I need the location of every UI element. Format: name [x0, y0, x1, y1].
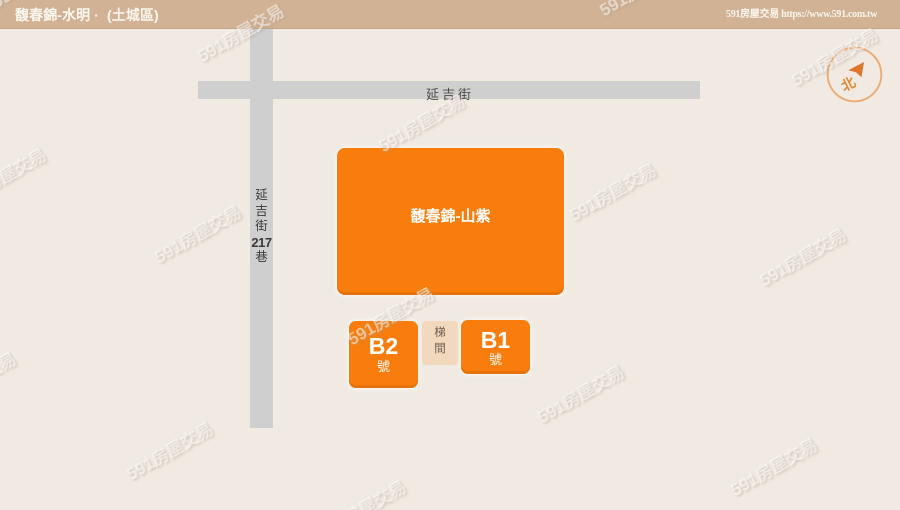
svg-text:北: 北 [838, 74, 858, 95]
